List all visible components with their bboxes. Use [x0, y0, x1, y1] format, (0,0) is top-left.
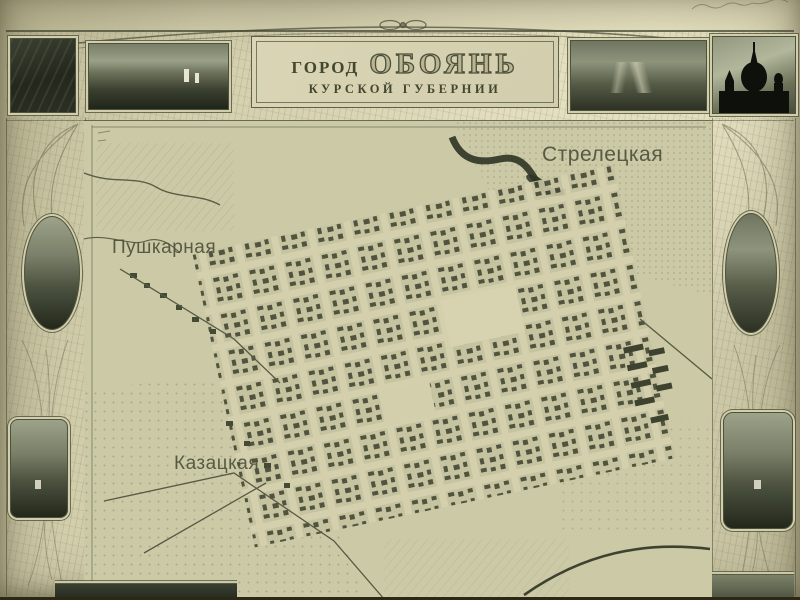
- district-label-streletskaya: Стрелецкая: [542, 143, 663, 166]
- district-label-pushkarnaya: Пушкарная: [112, 237, 216, 258]
- title-prefix: ГОРОД: [291, 59, 359, 76]
- title-subtitle: КУРСКОЙ ГУБЕРНИИ: [291, 83, 518, 96]
- white-belltower-icon: [195, 73, 199, 83]
- cathedral-silhouette-icon: [713, 37, 795, 113]
- photo-top-right-panorama: [570, 40, 707, 111]
- photo-right-oval: [725, 213, 777, 333]
- photo-top-left-corner: [10, 38, 76, 113]
- left-ornament-band: [6, 118, 86, 596]
- white-church-icon: [184, 69, 189, 82]
- white-building-icon: [35, 480, 41, 489]
- handwritten-note: [688, 0, 792, 14]
- orchard-bottom-center: [384, 539, 569, 600]
- photo-left-oval: [24, 216, 80, 330]
- photo-top-right-corner: [712, 36, 796, 114]
- title-cartouche: ГОРОД ОБОЯНЬ КУРСКОЙ ГУБЕРНИИ: [251, 36, 559, 108]
- white-building-icon: [754, 480, 761, 489]
- photo-right-lower: [723, 412, 793, 529]
- district-label-kazatskaya: Казацкая: [174, 453, 259, 474]
- town-plan-map: Стрелецкая Пушкарная Казацкая: [84, 120, 712, 600]
- title-city-name: ОБОЯНЬ: [369, 50, 518, 79]
- winding-road-highlight: [595, 62, 690, 94]
- map-sheet: ГОРОД ОБОЯНЬ КУРСКОЙ ГУБЕРНИИ: [0, 0, 800, 600]
- ribbon-bow-icon: [380, 21, 426, 30]
- photo-left-lower: [10, 419, 68, 518]
- orchard-top-left: [96, 143, 234, 231]
- left-top-frond-icon: [8, 120, 84, 230]
- photo-top-left-panorama: [88, 43, 229, 110]
